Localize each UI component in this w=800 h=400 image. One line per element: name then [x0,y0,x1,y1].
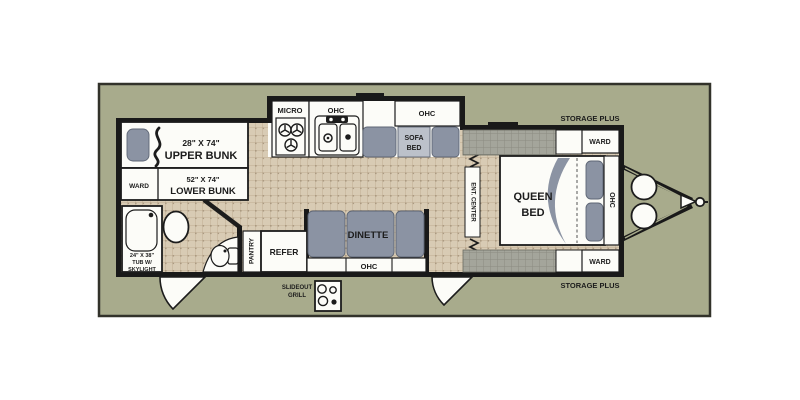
sofa-label-bottom: BED [407,145,422,152]
sofa-cushion [432,127,459,157]
sofa-bed: SOFA BED [363,127,459,157]
pantry-label: PANTRY [249,237,256,264]
queen-label-top: QUEEN [513,191,552,203]
pillow [586,161,603,199]
front-ohc-label: OHC [608,192,615,208]
propane-tank [632,204,657,229]
storage-hatch-top [463,130,556,155]
kitchen-sink [315,116,359,155]
ward-front-top-label: WARD [589,139,610,146]
sofa-cushion [363,127,396,157]
storage-plus-bottom-label: STORAGE PLUS [560,281,619,290]
pillow [586,203,603,241]
queen-bed: QUEEN BED [500,156,605,245]
cabinet [556,130,582,154]
bath-sink [164,212,189,243]
upper-bunk-label: UPPER BUNK [165,150,238,162]
propane-tank [632,175,657,200]
dinette-label: DINETTE [348,230,389,241]
queen-label-bottom: BED [521,207,544,219]
window-mark [356,93,384,98]
window-mark [488,122,518,127]
upper-bunk-size-label: 28" X 74" [182,138,219,148]
refer-label: REFER [270,247,299,257]
dinette-bench [396,211,424,257]
toilet [211,246,238,267]
sink-ohc-label: OHC [328,106,345,115]
sofa-label-top: SOFA [404,135,423,142]
storage-hatch-bottom [463,250,556,272]
ward-rear-label: WARD [129,183,149,190]
dinette: DINETTE OHC [307,211,426,272]
hitch-ball [696,198,704,206]
floorplan-image: 28" X 74" UPPER BUNK WARD 52" X 74" LOWE… [0,0,800,400]
stove [276,118,305,155]
lower-bunk-size-label: 52" X 74" [187,175,220,184]
slideout-grill-label-bottom: GRILL [288,293,306,299]
dinette-ohc-label: OHC [361,262,378,271]
dinette-bench [308,211,345,257]
tub-faucet [149,213,154,218]
storage-plus-top-label: STORAGE PLUS [560,114,619,123]
sofa-center [398,127,430,157]
ent-center-label: ENT. CENTER [470,182,476,222]
ward-front-bottom-label: WARD [589,259,610,266]
micro-label: MICRO [278,106,303,115]
tub-mid-label: TUB W/ [132,260,152,266]
bunk-area: 28" X 74" UPPER BUNK WARD 52" X 74" LOWE… [121,122,248,200]
lower-bunk-label: LOWER BUNK [170,186,236,197]
cabinet [556,250,582,272]
bunk-pillow [127,129,149,161]
tub-size-label: 24" X 38" [130,253,155,259]
tub-bottom-label: SKYLIGHT [128,267,156,273]
sofa-ohc-label: OHC [419,109,436,118]
slideout-grill-label-top: SLIDEOUT [282,285,313,291]
screenshot: 28" X 74" UPPER BUNK WARD 52" X 74" LOWE… [0,0,800,400]
